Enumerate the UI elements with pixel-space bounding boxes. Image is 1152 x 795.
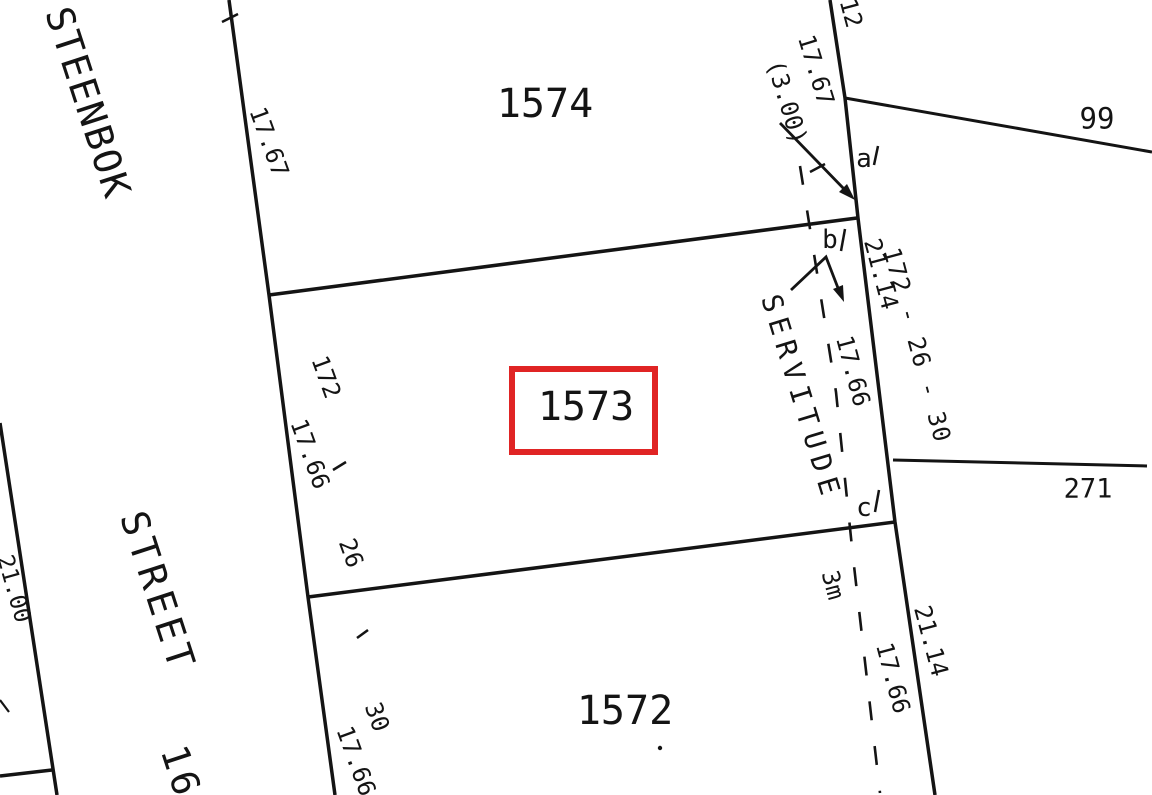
parcel-label-99: 99 [1080,105,1115,134]
cadastral-map: STEENBOK STREET 16 202 1574 1573 1572 99… [0,0,1152,795]
tick-point-c [875,490,879,512]
parcel-label-271: 271 [1064,476,1113,503]
boundary-1573-1572-line [308,522,895,597]
boundary-branch-271-line [893,460,1147,466]
point-label-a: a [856,146,872,172]
survey-dot [658,746,662,750]
tick-point-a [874,146,878,165]
boundary-1574-1573-line [269,218,857,295]
parcel-label-top-partial: 202 [377,0,426,5]
point-label-c: c [856,495,872,521]
parcel-label-1574: 1574 [497,84,593,124]
edge-partial-mark [0,700,9,712]
point-label-b: b [822,227,838,253]
servitude-width-label: 3m [818,568,849,602]
leader-arrow-servitude-head [833,285,844,302]
parcel-label-1572: 1572 [577,691,673,731]
parcel-label-1573: 1573 [538,387,634,427]
bottom-left-boundary-line [0,770,52,776]
tick-street-frontage-upper [333,462,346,470]
tick-point-b [841,229,845,251]
tick-street-frontage-lower [357,630,368,638]
